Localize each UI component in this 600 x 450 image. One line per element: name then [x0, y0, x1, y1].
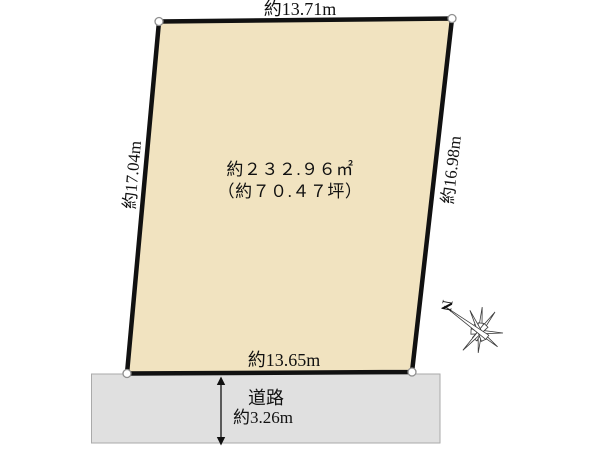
compass-rose-icon: [444, 306, 503, 353]
vertex-marker-top-right: [448, 15, 456, 23]
area-size-label: 約２３２.９６㎡: [140, 161, 440, 179]
vertex-marker-top-left: [155, 18, 163, 26]
bottom-dimension-label: 約13.65m: [214, 351, 354, 370]
top-dimension-label: 約13.71m: [230, 0, 370, 19]
diagram-canvas: [0, 0, 600, 450]
land-plot-diagram: 約13.71m 約17.04m 約16.98m 約13.65m 約２３２.９６㎡…: [0, 0, 600, 450]
area-tsubo-label: （約７０.４７坪）: [140, 183, 440, 201]
road-label: 道路: [206, 389, 326, 408]
vertex-marker-bottom-left: [123, 370, 131, 378]
road-width-label: 約3.26m: [193, 409, 333, 427]
compass-north-label: N: [431, 291, 455, 318]
vertex-marker-bottom-right: [408, 368, 416, 376]
